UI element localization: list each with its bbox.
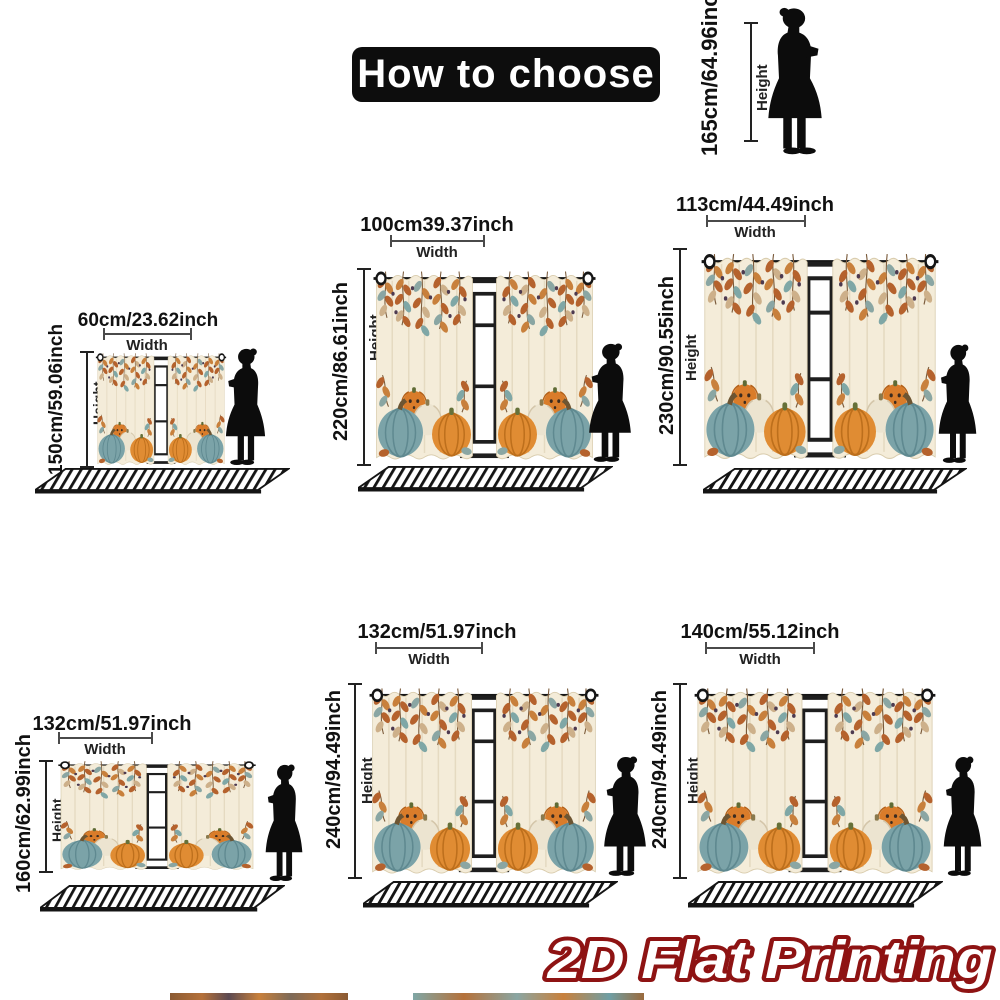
- height-value: 220cm/86.61inch: [330, 272, 356, 452]
- floor-hatch: [363, 880, 618, 908]
- width-bracket: [375, 647, 483, 649]
- height-measure-line: [679, 248, 681, 466]
- curtain-window-illustration: [372, 266, 597, 465]
- size-diagram-60x150: 60cm/23.62inch Width 150cm/59.06inch Hei…: [35, 305, 290, 497]
- floor-hatch: [703, 467, 967, 494]
- width-bracket: [103, 333, 192, 335]
- size-diagram-132x240: 132cm/51.97inch Width 240cm/94.49inch He…: [315, 615, 655, 915]
- person-silhouette: [222, 347, 269, 468]
- height-measure-line: [354, 683, 356, 879]
- width-bracket: [58, 737, 153, 739]
- curtain-window-illustration: [693, 683, 937, 879]
- person-silhouette: [763, 6, 827, 158]
- height-measure-line: [363, 268, 365, 466]
- floor-hatch: [40, 884, 285, 912]
- reference-person-height: 165cm/64.96inch Height: [695, 2, 835, 162]
- width-value: 132cm/51.97inch: [12, 713, 212, 736]
- curtain-window-illustration: [57, 758, 257, 873]
- height-value: 160cm/62.99inch: [13, 753, 39, 893]
- floor-hatch: [358, 465, 613, 492]
- page-title: How to choose: [352, 47, 660, 102]
- reference-height-value: 165cm/64.96inch: [697, 6, 729, 156]
- next-image-preview-2: [413, 993, 644, 1000]
- reference-height-measure-line: [750, 22, 752, 142]
- height-value: 150cm/59.06inch: [46, 343, 72, 475]
- size-diagram-140x240: 140cm/55.12inch Width 240cm/94.49inch He…: [640, 615, 990, 915]
- next-image-preview-1: [170, 993, 348, 1000]
- curtain-window-illustration: [95, 350, 227, 468]
- width-bracket: [706, 220, 806, 222]
- person-silhouette: [935, 343, 980, 466]
- width-label: Width: [55, 741, 155, 758]
- width-label: Width: [710, 651, 810, 668]
- width-value: 60cm/23.62inch: [58, 310, 238, 332]
- height-measure-line: [86, 351, 88, 468]
- printing-style-watermark: 2D Flat Printing: [540, 920, 1000, 998]
- width-value: 140cm/55.12inch: [660, 621, 860, 644]
- person-silhouette: [262, 763, 306, 884]
- watermark-text: 2D Flat Printing: [546, 930, 992, 990]
- width-bracket: [390, 240, 485, 242]
- width-value: 113cm/44.49inch: [655, 194, 855, 217]
- person-silhouette: [585, 342, 635, 465]
- size-guide-infographic: How to choose 165cm/64.96inch Height 60c…: [0, 0, 1000, 1000]
- width-bracket: [705, 647, 815, 649]
- height-measure-line: [45, 760, 47, 873]
- person-silhouette: [940, 755, 985, 879]
- width-label: Width: [705, 224, 805, 241]
- width-label: Width: [387, 244, 487, 261]
- height-value: 240cm/94.49inch: [323, 680, 349, 860]
- height-label: Height: [683, 330, 700, 386]
- size-diagram-113x230: 113cm/44.49inch Width 230cm/90.55inch He…: [650, 190, 980, 495]
- curtain-window-illustration: [368, 683, 600, 879]
- curtain-window-illustration: [700, 248, 940, 465]
- floor-hatch: [688, 880, 943, 908]
- width-value: 100cm39.37inch: [337, 214, 537, 237]
- size-diagram-100x220: 100cm39.37inch Width 220cm/86.61inch Hei…: [315, 210, 640, 494]
- width-value: 132cm/51.97inch: [337, 621, 537, 644]
- width-label: Width: [379, 651, 479, 668]
- size-diagram-132x160: 132cm/51.97inch Width 160cm/62.99inch He…: [10, 705, 305, 917]
- floor-hatch: [35, 467, 290, 494]
- height-value: 240cm/94.49inch: [649, 680, 675, 860]
- height-measure-line: [679, 683, 681, 879]
